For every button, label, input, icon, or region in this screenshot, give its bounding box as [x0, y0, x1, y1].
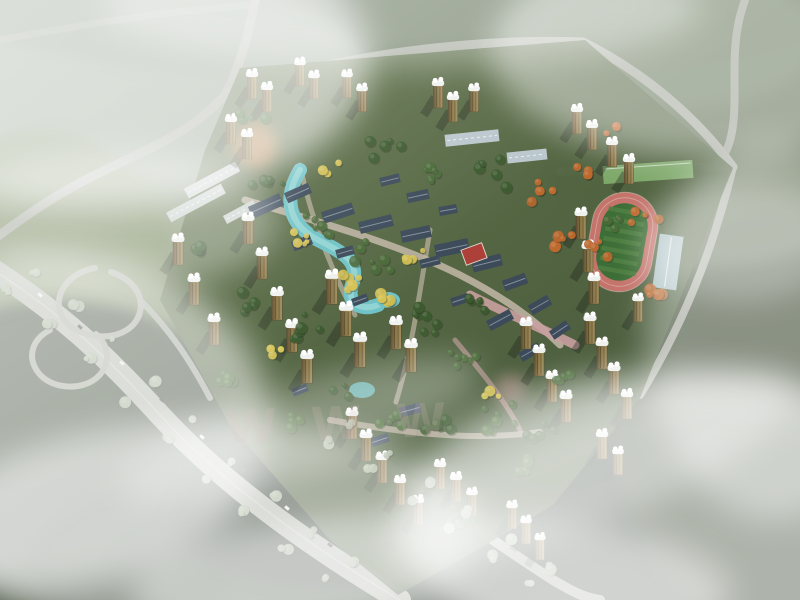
aerial-masterplan-rendering: WWW: [0, 0, 800, 600]
global-haze: [0, 0, 800, 600]
rendering-canvas: [0, 0, 800, 600]
fog-mist-overlay: [0, 0, 800, 600]
